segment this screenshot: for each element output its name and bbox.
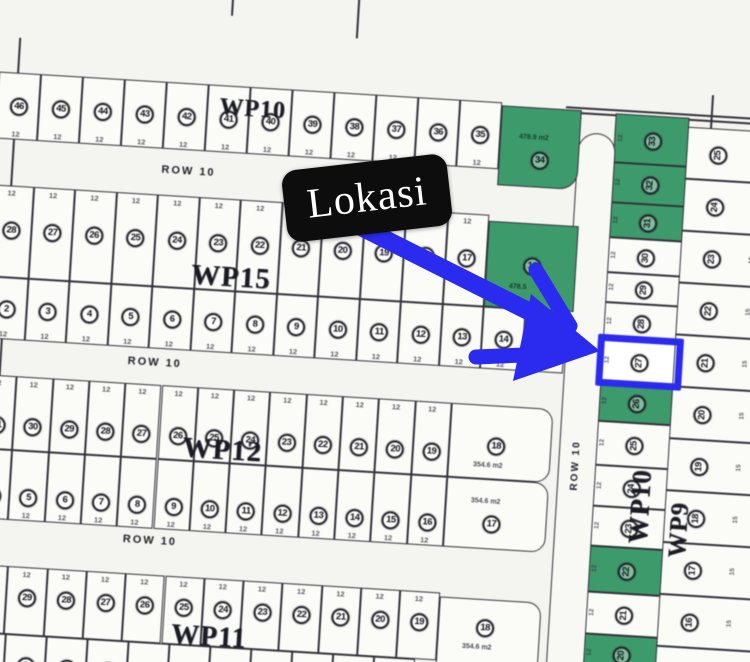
plot-number: 16: [680, 613, 699, 632]
plot-width-dim: 12: [612, 216, 619, 224]
plot-number: 3: [16, 657, 35, 662]
plot-number: 23: [209, 234, 228, 253]
plot-number: 18: [476, 619, 495, 638]
plot-width-dim: 12: [57, 513, 66, 522]
plot-width-dim: 12: [463, 216, 472, 225]
plot-number: 19: [690, 458, 709, 477]
plot-cell: 1612: [407, 474, 448, 546]
plot-width-dim: 12: [247, 393, 256, 402]
plot-number: 22: [292, 606, 311, 625]
plot-cell: 2712: [28, 187, 75, 281]
plot-cell: 4612: [0, 72, 41, 141]
plot-number: 31: [0, 416, 6, 435]
plot-number: 44: [93, 102, 112, 121]
plot-number: 25: [174, 598, 193, 617]
plot-width-dim: 12: [283, 396, 292, 405]
plot-number: 11: [236, 502, 255, 521]
plot-cell: 512: [8, 450, 49, 522]
plot-width-dim: 12: [123, 337, 132, 346]
plot-number: 7: [204, 313, 223, 332]
plot-number: 30: [636, 248, 655, 267]
block-label-wp12: WP12: [181, 431, 263, 469]
plot-cell: 712: [190, 289, 235, 353]
plot-cell: 2012: [375, 398, 416, 474]
plot-number: 4: [0, 486, 2, 505]
plot-number: 24: [167, 231, 186, 250]
plot-cell: 1615: [655, 594, 750, 653]
plot-width-dim: 12: [140, 577, 149, 586]
plot-cell: 2012: [357, 588, 400, 658]
plot-number: 23: [253, 603, 272, 622]
green-plot-478-5: 16478.5: [484, 221, 579, 312]
plot-number: 22: [699, 302, 718, 321]
plot-area-label: 478.9 m2: [519, 133, 549, 142]
plot-number: 8: [245, 315, 264, 334]
plot-number: 20: [612, 646, 631, 662]
plot-cell: 3012: [606, 237, 682, 276]
plot-cell: 1112: [356, 299, 401, 363]
plot-number: 14: [345, 509, 364, 528]
plot-width-dim: 12: [239, 524, 248, 533]
plot-width-dim: 12: [214, 201, 223, 210]
plot-number: 22: [617, 562, 636, 581]
plot-width-dim: 12: [130, 517, 139, 526]
plot-cell: 3712: [372, 95, 418, 164]
plot-width-dim: 12: [297, 587, 306, 596]
plot-width-dim: 12: [591, 565, 598, 573]
plot-width-dim: 12: [95, 135, 104, 144]
road-label-row10-vertical: ROW 10: [559, 420, 590, 511]
plot-width-dim: 12: [247, 344, 256, 353]
plot-width-dim: 12: [610, 251, 617, 259]
plot-width-dim: 12: [588, 608, 595, 616]
plot-width-dim: 12: [11, 129, 20, 138]
plot-cell: 3112: [608, 202, 684, 241]
plot-number: 27: [132, 424, 151, 443]
plot-cell: 2415: [681, 179, 750, 238]
plot-width-dim: 12: [454, 357, 463, 366]
plot-number: 42: [177, 108, 196, 127]
plot-number: 43: [135, 105, 154, 124]
plot-width-dim: 12: [94, 515, 103, 524]
plot-cell: 1212: [397, 302, 442, 366]
plot-number: 26: [628, 394, 647, 413]
plot-area-label: 354.6 m2: [473, 461, 503, 470]
plot-number: 4: [80, 305, 99, 324]
plot-cell: 1412: [334, 470, 375, 542]
plot-cell: 2712: [83, 571, 126, 641]
plot-number: 28: [57, 591, 76, 610]
plot-number: 13: [309, 506, 328, 525]
plot-width-dim: 12: [166, 520, 175, 529]
plot-cell: 2712: [121, 383, 162, 459]
block-label-wp9-column: WP9: [663, 489, 696, 571]
plot-number: 18: [487, 437, 506, 456]
plot-cell: 1012: [189, 461, 230, 533]
plot-number: 45: [51, 100, 70, 119]
plot-cell: 812: [117, 457, 158, 529]
plot-cell: 4312: [121, 79, 167, 148]
plot-width-dim: 12: [179, 140, 188, 149]
plot-area-label: 354.6 m2: [462, 643, 492, 652]
plot-number: 5: [19, 489, 38, 508]
plot-width-dim: 12: [137, 137, 146, 146]
plot-cell: 1312: [298, 468, 339, 540]
plot-width-dim: 12: [371, 352, 380, 361]
plot-width-dim: 12: [311, 529, 320, 538]
plot-width-dim: 12: [21, 511, 30, 520]
plot-cell: 2912: [49, 378, 90, 454]
plot-cell: 1912: [411, 401, 452, 477]
plot-number: 26: [85, 226, 104, 245]
plot-width-dim: 12: [336, 589, 345, 598]
plot-width-dim: 12: [258, 584, 267, 593]
plot-depth-dim: 15: [735, 464, 742, 472]
plot-depth-dim: 15: [732, 516, 739, 524]
plot-cell: 612: [44, 452, 85, 524]
plot-cell: 2212: [302, 394, 343, 470]
plot-width-dim: 12: [29, 380, 38, 389]
plot-number: 28: [96, 422, 115, 441]
plot-cell: 4412: [79, 77, 125, 146]
plot-number: 12: [273, 504, 292, 523]
plot-width-dim: 12: [347, 531, 356, 540]
plot-depth-dim: 15: [738, 412, 745, 420]
plot-width-dim: 12: [413, 354, 422, 363]
plot-width-dim: 12: [319, 398, 328, 407]
plot-number: 37: [387, 120, 406, 139]
plot-number: 28: [2, 221, 21, 240]
plot-width-dim: 12: [614, 178, 621, 186]
plot-number: 35: [471, 126, 490, 145]
plot-width-dim: 12: [210, 391, 219, 400]
block-label-wp15: WP15: [190, 259, 272, 297]
plot-number: 24: [214, 601, 233, 620]
plot-number: 33: [644, 132, 663, 151]
plot-cell: 1512: [521, 309, 566, 373]
plot-number: 9: [287, 318, 306, 337]
plot-depth-dim: 15: [745, 308, 750, 316]
plot-width-dim: 12: [384, 533, 393, 542]
plot-cell: 2112: [584, 591, 660, 637]
plot-cell: 2612: [122, 573, 165, 643]
plot-cell: 2112: [338, 396, 379, 472]
plot-number: 29: [60, 420, 79, 439]
plot-cell: 1512: [370, 472, 411, 544]
plot-cell: 3: [2, 634, 47, 662]
plot-number: 10: [328, 320, 347, 339]
plot-cell: 11: [329, 654, 374, 662]
plot-width-dim: 12: [537, 362, 546, 371]
plot-number: 17: [482, 515, 501, 534]
plot-cell: 1412: [480, 307, 525, 371]
plot-number: 39: [303, 115, 322, 134]
plot-number: 29: [634, 281, 653, 300]
plot-width-dim: 12: [392, 402, 401, 411]
plot-cell: 2512: [111, 192, 158, 286]
plot-number: 25: [709, 146, 728, 165]
plot-cell: 1112: [225, 463, 266, 535]
plot-cell: 612: [149, 286, 194, 350]
road-label-row10-strip3: ROW 10: [122, 533, 177, 548]
road-label-row10-strip1: ROW 10: [161, 164, 216, 179]
plot-cell: 2112: [318, 585, 361, 655]
plot-cell: 2212: [279, 583, 322, 653]
top-road-tick-2: [356, 0, 362, 38]
site-plan-map: ROW 10 ROW 10 ROW 10 ROW 10 WP10 WP15 WP…: [0, 0, 750, 662]
plot-cell: 3012: [12, 376, 53, 452]
road-label-text: ROW 10: [568, 440, 582, 491]
plot-cell: 3512: [456, 100, 502, 169]
plot-width-dim: 12: [617, 134, 624, 142]
top-road-tick-1: [231, 0, 236, 16]
plot-number: 21: [331, 608, 350, 627]
plot-cell: 412: [66, 281, 111, 345]
plot-cell: 4512: [37, 74, 83, 143]
plot-number: 20: [693, 406, 712, 425]
plot-number: 19: [422, 442, 441, 461]
plot-width-dim: 12: [81, 334, 90, 343]
plot-cell: 3212: [610, 162, 686, 206]
plot-number: 34: [530, 151, 549, 170]
plot-cell: 2012: [582, 633, 658, 662]
plot-width-dim: 12: [420, 535, 429, 544]
plot-width-dim: 12: [496, 359, 505, 368]
plot-number: 20: [370, 610, 389, 629]
plot-number: 15: [381, 511, 400, 530]
block-label-wp9-column-text: WP9: [664, 501, 695, 558]
plot-cell: 6: [124, 642, 169, 662]
plot-width-dim: 12: [102, 384, 111, 393]
plot-number: 46: [9, 97, 28, 116]
plot-cell: 1915: [665, 438, 750, 497]
plot-cell: 1312: [438, 304, 483, 368]
plot-width-dim: 12: [275, 526, 284, 535]
plot-cell: 4212: [163, 82, 209, 151]
plot-number: 19: [410, 613, 429, 632]
plot-width-dim: 12: [256, 204, 265, 213]
plot-number: 32: [641, 176, 660, 195]
plot-number: 22: [250, 236, 269, 255]
plot-number: 15: [535, 333, 554, 352]
plot-width-dim: 12: [174, 389, 183, 398]
plot-number: 24: [706, 198, 725, 217]
plot-width-dim: 12: [593, 522, 600, 530]
plot-number: 12: [411, 325, 430, 344]
plot-width-dim: 12: [65, 382, 74, 391]
plot-cell: 2015: [668, 386, 750, 445]
plot-width-dim: 12: [7, 188, 16, 197]
plot-number: 26: [135, 596, 154, 615]
plot-width-dim: 12: [608, 283, 615, 291]
plot-cell: 2515: [684, 127, 750, 186]
plot-number: 20: [333, 241, 352, 260]
plot-cell: 912: [273, 294, 318, 358]
plot-cell: 512: [107, 284, 152, 348]
plot-number: 14: [494, 330, 513, 349]
plot-width-dim: 12: [221, 142, 230, 151]
plot-width-dim: 12: [355, 400, 364, 409]
plot-cell: 312: [24, 279, 69, 343]
plot-number: 27: [43, 224, 62, 243]
plot-area-label: 354.6 m2: [471, 497, 501, 506]
plot-width-dim: 12: [305, 147, 314, 156]
plot-cell: 2812: [85, 381, 126, 457]
plot-cell: 2312: [266, 392, 307, 468]
plot-cell: 3312: [613, 113, 690, 166]
plot-width-dim: 12: [472, 158, 481, 167]
plot-cell: 9: [247, 649, 292, 662]
block-label-wp10-top: WP10: [219, 94, 287, 125]
plot-width-dim: 12: [586, 648, 593, 656]
plot-number: 31: [639, 213, 658, 232]
plot-cell: 2912: [604, 272, 680, 306]
plot-number: 16: [523, 257, 542, 276]
plot-width-dim: 12: [263, 145, 272, 154]
plot-number: 6: [163, 310, 182, 329]
plot-width-dim: 12: [61, 572, 70, 581]
plot-number: 36: [429, 123, 448, 142]
plot-width-dim: 12: [53, 132, 62, 141]
plot-width-dim: 12: [414, 594, 423, 603]
plot-cell: 2315: [678, 230, 750, 289]
highlighted-plot-outline: [595, 334, 684, 391]
plot-number: 19: [374, 244, 393, 263]
plot-number: 29: [17, 589, 36, 608]
plot-number: 16: [418, 513, 437, 532]
plot-width-dim: 12: [173, 198, 182, 207]
plot-width-dim: 12: [428, 404, 437, 413]
plot-number: 21: [349, 438, 368, 457]
plot-depth-dim: 15: [726, 620, 733, 628]
plot-number: 11: [370, 323, 389, 342]
plot-width-dim: 12: [202, 522, 211, 531]
plot-number: 23: [702, 250, 721, 269]
plot-cell: 1212: [262, 466, 303, 538]
plot-number: 8: [128, 495, 147, 514]
plot-number: 13: [452, 328, 471, 347]
plot-number: 23: [277, 433, 296, 452]
location-badge-label: Lokasi: [305, 167, 430, 228]
plot-width-dim: 12: [596, 481, 603, 489]
large-plot-wp12-lower: 17354.6 m2: [443, 477, 549, 553]
plot-cell: 3912: [288, 90, 334, 159]
plot-number: 28: [632, 314, 651, 333]
plot-number: 30: [23, 418, 42, 437]
plot-number: 21: [696, 354, 715, 373]
plot-width-dim: 12: [330, 349, 339, 358]
plot-number: 2: [0, 300, 16, 319]
plot-cell: 4: [42, 637, 87, 662]
plot-cell: 2812: [43, 568, 86, 638]
plot-area-label: 478.5: [509, 283, 527, 291]
plot-width-dim: 12: [138, 387, 147, 396]
block-label-wp10-column-text: WP10: [622, 468, 657, 544]
plot-width-dim: 12: [375, 592, 384, 601]
plot-width-dim: 12: [218, 582, 227, 591]
plot-cell: 3812: [330, 92, 376, 161]
plot-width-dim: 12: [0, 378, 2, 387]
green-corner-plot: 34478.9 m2: [497, 105, 582, 190]
plot-width-dim: 12: [131, 196, 140, 205]
plot-number: 7: [92, 493, 111, 512]
plot-cell: 1012: [314, 296, 359, 360]
plot-number: 18: [416, 246, 435, 265]
plot-number: 5: [121, 308, 140, 327]
plot-number: 27: [96, 594, 115, 613]
block-label-wp11: WP11: [170, 619, 247, 656]
plot-cell: 912: [153, 459, 194, 531]
plot-cell: 1912: [396, 590, 439, 660]
plot-width-dim: 12: [49, 191, 58, 200]
plot-depth-dim: 15: [742, 360, 749, 368]
plot-number: 20: [386, 440, 405, 459]
plot-width-dim: 12: [0, 329, 7, 338]
plot-width-dim: 12: [179, 580, 188, 589]
plot-number: 22: [313, 435, 332, 454]
plot-width-dim: 12: [101, 575, 110, 584]
plot-cell: 10: [288, 652, 333, 662]
plot-cell: 712: [81, 455, 122, 527]
plot-number: 9: [164, 497, 183, 516]
plot-depth-dim: 15: [729, 568, 736, 576]
site-plan-screenshot: ROW 10 ROW 10 ROW 10 ROW 10 WP10 WP15 WP…: [0, 0, 750, 662]
plot-cell: 1712: [442, 212, 489, 306]
plot-width-dim: 12: [606, 316, 613, 324]
plot-number: 25: [126, 229, 145, 248]
plot-cell: 5: [83, 639, 128, 662]
plot-width-dim: 12: [346, 150, 355, 159]
plot-width-dim: 12: [601, 396, 608, 404]
plot-number: 3: [38, 302, 57, 321]
large-plot-wp11-upper: 18354.6 m2: [435, 596, 541, 662]
plot-cell: 2912: [4, 566, 47, 636]
large-plot-wp12-upper: 18354.6 m2: [447, 403, 553, 483]
plot-cell: 2612: [69, 189, 116, 283]
plot-cell: 2215: [674, 282, 750, 341]
plot-width-dim: 12: [22, 570, 31, 579]
plot-width-dim: 12: [164, 339, 173, 348]
plot-width-dim: 12: [90, 193, 99, 202]
plot-number: 6: [55, 491, 74, 510]
plot-width-dim: 12: [289, 347, 298, 356]
plot-width-dim: 12: [599, 439, 606, 447]
plot-cell: 812: [231, 291, 276, 355]
plot-width-dim: 12: [206, 342, 215, 351]
plot-number: 10: [200, 500, 219, 519]
plot-number: 21: [615, 606, 634, 625]
road-label-row10-strip2: ROW 10: [127, 355, 182, 370]
plot-width-dim: 12: [40, 332, 49, 341]
plot-number: 38: [345, 118, 364, 137]
plot-number: 17: [457, 249, 476, 268]
